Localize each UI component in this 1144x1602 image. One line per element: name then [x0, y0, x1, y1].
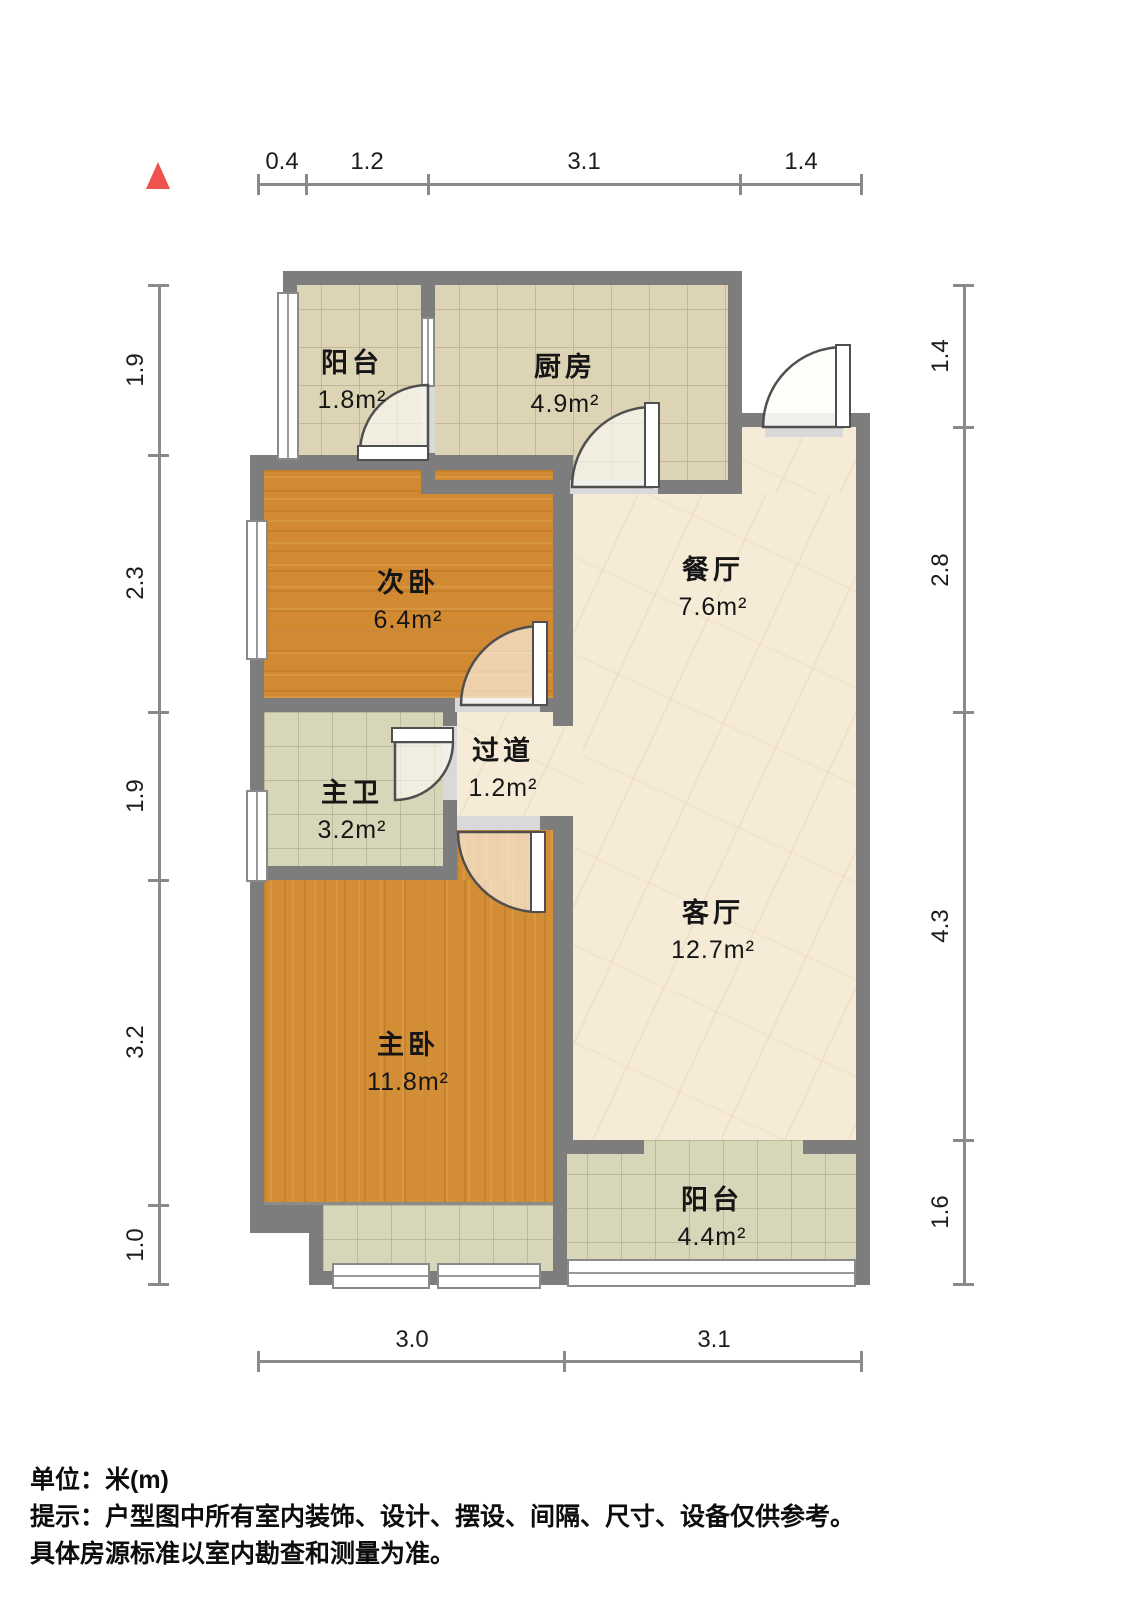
wall-balcony-bottom-left [553, 1140, 567, 1285]
floor-bedroom-master-step [457, 830, 553, 885]
window-bathroom-icon [246, 790, 268, 882]
dim-tick [953, 426, 974, 429]
room-area: 1.8m² [318, 386, 387, 415]
dim-label-right-0: 1.4 [927, 339, 955, 372]
room-name: 次卧 [374, 561, 443, 600]
wall-living-bottom-right-stub [803, 1140, 870, 1154]
dim-label-left-3: 3.2 [122, 1025, 150, 1058]
wall-top [283, 271, 742, 285]
window-divider-panel-icon [421, 317, 435, 387]
room-label-bathroom: 主卫 3.2m² [318, 771, 387, 845]
dim-label-bottom-0: 3.0 [395, 1326, 428, 1354]
dim-tick [257, 174, 260, 195]
room-name: 过道 [469, 729, 538, 768]
room-area: 6.4m² [374, 606, 443, 635]
wall-bathroom-bottom [250, 866, 457, 880]
dim-label-bottom-1: 3.1 [697, 1326, 730, 1354]
north-arrow-icon [146, 162, 170, 189]
room-area: 11.8m² [367, 1068, 449, 1097]
dim-tick [305, 174, 308, 195]
threshold-entry-door [765, 413, 843, 437]
dim-label-top-3: 1.4 [784, 148, 817, 176]
window-balcony-top-icon [277, 292, 299, 460]
dim-tick [860, 1351, 863, 1372]
room-area: 4.4m² [678, 1223, 747, 1252]
dim-label-left-4: 1.0 [122, 1228, 150, 1261]
dim-line-left [158, 285, 161, 1285]
wall-bedroom-master-right [553, 816, 573, 1140]
room-label-kitchen: 厨房 4.9m² [531, 345, 600, 419]
room-name: 主卧 [367, 1023, 449, 1062]
wall-upper-right [728, 271, 742, 494]
wall-bedroom-utility-edge [264, 1202, 553, 1205]
threshold-bathroom-door [443, 726, 457, 800]
room-label-bedroom-secondary: 次卧 6.4m² [374, 561, 443, 635]
footer-notes: 单位：米(m) 提示：户型图中所有室内装饰、设计、摆设、间隔、尺寸、设备仅供参考… [30, 1462, 855, 1573]
threshold-bedroom-master-door [457, 816, 540, 830]
dim-label-left-1: 2.3 [122, 566, 150, 599]
room-label-bedroom-master: 主卧 11.8m² [367, 1023, 449, 1097]
threshold-balcony-door [421, 385, 435, 453]
dim-line-top [258, 183, 862, 186]
window-bedroom2-icon [246, 520, 268, 660]
window-utility-right-icon [437, 1263, 541, 1289]
room-label-living: 客厅 12.7m² [671, 891, 755, 965]
dim-tick [148, 454, 169, 457]
threshold-bedroom2-door [455, 698, 540, 712]
room-area: 4.9m² [531, 390, 600, 419]
dim-tick [257, 1351, 260, 1372]
window-balcony-bottom-rail-icon [567, 1259, 856, 1287]
dim-tick [860, 174, 863, 195]
floorplan-page: 阳台 1.8m² 厨房 4.9m² 次卧 6.4m² 餐厅 7.6m² 主卫 3… [0, 0, 1144, 1602]
room-name: 阳台 [678, 1178, 747, 1217]
dim-tick [739, 174, 742, 195]
room-name: 厨房 [531, 345, 600, 384]
threshold-kitchen-door [570, 480, 658, 494]
room-area: 3.2m² [318, 816, 387, 845]
dim-tick [953, 711, 974, 714]
room-name: 阳台 [318, 341, 387, 380]
dim-label-right-1: 2.8 [927, 553, 955, 586]
dim-label-left-2: 1.9 [122, 779, 150, 812]
dim-line-bottom [258, 1360, 862, 1363]
dim-label-top-1: 1.2 [350, 148, 383, 176]
room-label-dining: 餐厅 7.6m² [679, 548, 748, 622]
room-area: 12.7m² [671, 936, 755, 965]
room-label-hallway: 过道 1.2m² [469, 729, 538, 803]
room-label-balcony-top: 阳台 1.8m² [318, 341, 387, 415]
dim-tick [953, 284, 974, 287]
dim-label-right-2: 4.3 [927, 909, 955, 942]
dim-tick [148, 284, 169, 287]
dim-tick [953, 1283, 974, 1286]
wall-bedroom2-right [553, 455, 573, 726]
room-name: 餐厅 [679, 548, 748, 587]
room-area: 1.2m² [469, 774, 538, 803]
footer-disclaimer-line1: 提示：户型图中所有室内装饰、设计、摆设、间隔、尺寸、设备仅供参考。 [30, 1499, 855, 1536]
room-label-balcony-bottom: 阳台 4.4m² [678, 1178, 747, 1252]
dim-tick [563, 1351, 566, 1372]
dim-tick [148, 879, 169, 882]
footer-disclaimer-line2: 具体房源标准以室内勘查和测量为准。 [30, 1536, 855, 1573]
dim-tick [953, 1139, 974, 1142]
wall-right [856, 413, 870, 1285]
dim-label-left-0: 1.9 [122, 353, 150, 386]
dim-label-right-3: 1.6 [927, 1195, 955, 1228]
room-name: 主卫 [318, 771, 387, 810]
dim-label-top-2: 3.1 [567, 148, 600, 176]
dim-tick [427, 174, 430, 195]
dim-tick [148, 1204, 169, 1207]
room-area: 7.6m² [679, 593, 748, 622]
room-name: 客厅 [671, 891, 755, 930]
footer-unit-note: 单位：米(m) [30, 1462, 855, 1499]
wall-left-step-vertical [309, 1205, 323, 1285]
dim-line-right [963, 285, 966, 1285]
dim-tick [148, 1283, 169, 1286]
dim-tick [148, 711, 169, 714]
dim-label-top-0: 0.4 [265, 148, 298, 176]
window-utility-left-icon [332, 1263, 430, 1289]
